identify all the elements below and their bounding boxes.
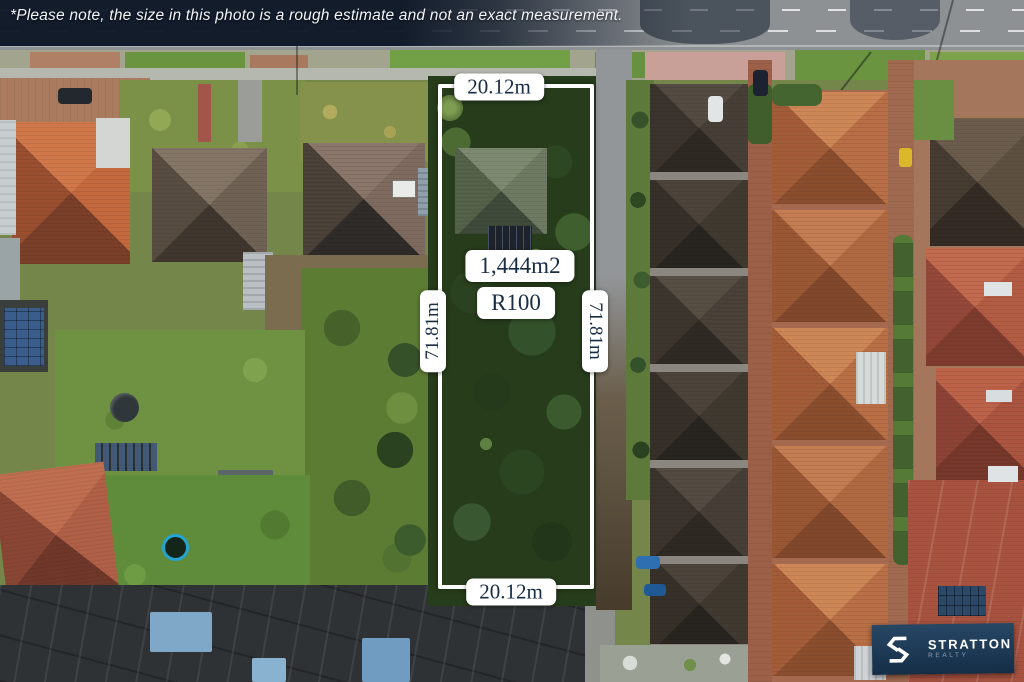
skylight — [392, 180, 416, 198]
skylight — [984, 282, 1012, 296]
car — [899, 148, 912, 167]
depth-left-label: 71.81m — [420, 290, 446, 372]
area-label: 1,444m2 — [465, 250, 574, 282]
driveway — [238, 80, 262, 142]
house-facade-strip — [600, 645, 750, 682]
trampoline — [162, 534, 189, 561]
house-roof-brown — [303, 143, 425, 255]
zoning-label: R100 — [477, 287, 555, 319]
garden-path — [198, 84, 211, 142]
car — [636, 556, 660, 569]
carport-roof — [856, 352, 886, 404]
aerial-photo: *Please note, the size in this photo is … — [0, 0, 1024, 682]
solar-panels — [4, 308, 44, 366]
flat-roof-panel — [96, 118, 130, 168]
frontage-top-label: 20.12m — [454, 74, 544, 101]
townhouse-roof — [650, 276, 748, 364]
depth-right-label: 71.81m — [582, 290, 608, 372]
townhouse-roof-orange — [772, 446, 888, 558]
house-roof-salmon — [936, 368, 1024, 480]
depth-right-value: 71.81m — [584, 302, 606, 360]
pergola-roof — [0, 238, 20, 304]
water-tank — [110, 393, 139, 422]
frontage-bottom-value: 20.12m — [479, 580, 543, 604]
hedge — [772, 84, 822, 106]
skylight — [986, 390, 1012, 402]
lot-outline — [438, 84, 594, 589]
brand-tagline: REALTY — [928, 651, 1012, 660]
house-roof-salmon — [926, 248, 1024, 366]
house-roof-grey — [152, 148, 267, 262]
frontage-bottom-label: 20.12m — [466, 579, 556, 606]
shed-solar-roof — [95, 443, 157, 471]
blue-tarp — [150, 612, 212, 652]
car — [644, 584, 666, 596]
townhouse-roof — [650, 180, 748, 268]
townhouse-roof — [650, 564, 748, 644]
backyard-lawn — [55, 330, 305, 475]
blue-tarp — [362, 638, 410, 682]
frontage-top-value: 20.12m — [467, 75, 531, 99]
townhouse-roof — [650, 468, 748, 556]
solar-panels — [938, 586, 986, 616]
stratton-s-icon — [886, 635, 910, 663]
car — [708, 96, 723, 122]
brand-name: STRATTON — [928, 637, 1012, 652]
brand-logo: STRATTON REALTY — [872, 623, 1015, 675]
pole-shadow — [296, 40, 298, 95]
skylight — [988, 466, 1018, 482]
blue-tarp — [252, 658, 286, 682]
townhouse-roof — [650, 372, 748, 460]
car — [753, 70, 768, 96]
area-value: 1,444m2 — [479, 253, 560, 278]
metal-roof-strip — [0, 120, 16, 235]
zoning-value: R100 — [491, 290, 541, 315]
tree-shadow — [850, 0, 940, 40]
brick-laneway — [748, 60, 772, 682]
townhouse-roof-orange — [772, 210, 888, 322]
disclaimer-text: *Please note, the size in this photo is … — [10, 7, 623, 25]
lawn — [914, 80, 954, 140]
townhouse-roof — [650, 84, 748, 172]
depth-left-value: 71.81m — [422, 302, 444, 360]
townhouse-roof-orange — [772, 92, 888, 204]
car — [58, 88, 92, 104]
